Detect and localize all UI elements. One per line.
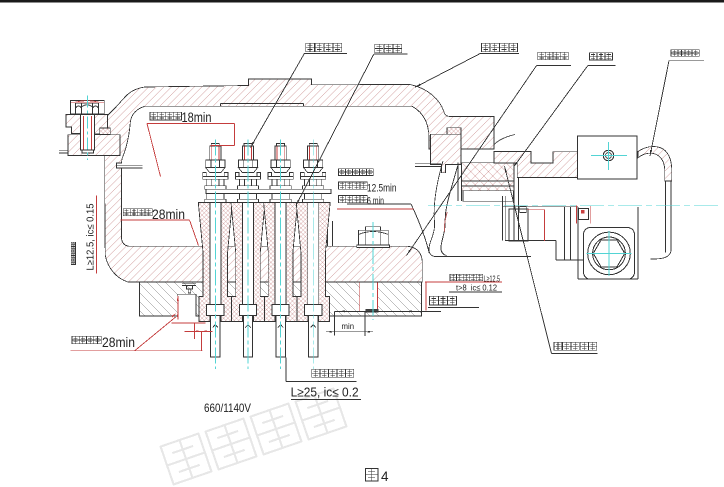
svg-text:L≥12.5, ic≤ 0.15: L≥12.5, ic≤ 0.15 <box>85 203 96 270</box>
svg-text:18min: 18min <box>182 110 212 125</box>
svg-text:12.5min: 12.5min <box>367 182 397 194</box>
svg-text:660/1140V: 660/1140V <box>204 401 251 415</box>
svg-text:28min: 28min <box>152 207 185 222</box>
svg-text:4: 4 <box>381 469 389 484</box>
svg-text:28min: 28min <box>102 335 135 350</box>
svg-text:min: min <box>342 322 355 331</box>
svg-text:6 min: 6 min <box>367 196 384 208</box>
svg-text:L≥25, ic≤ 0.2: L≥25, ic≤ 0.2 <box>291 386 359 400</box>
svg-text:t>8 ic≤ 0.12: t>8 ic≤ 0.12 <box>456 283 497 293</box>
